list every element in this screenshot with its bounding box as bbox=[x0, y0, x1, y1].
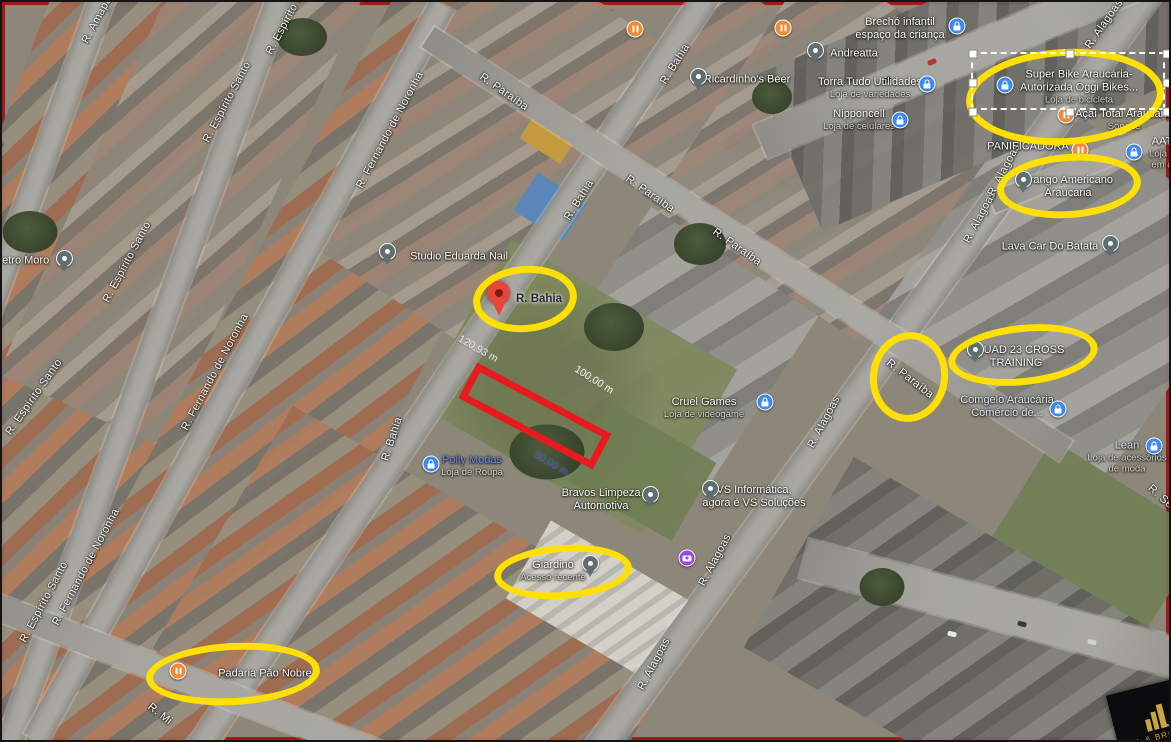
business-name: Studio Eduarda Nail bbox=[410, 251, 508, 264]
business-label[interactable]: Studio Eduarda Nail bbox=[410, 251, 508, 264]
business-name: Ricardinho's Beer bbox=[704, 74, 790, 87]
business-name: Petro Moro bbox=[0, 255, 49, 268]
business-category: em a bbox=[1149, 160, 1171, 171]
selection-handle[interactable] bbox=[969, 79, 978, 88]
business-label[interactable]: Comgelo AraucáriaComércio de... bbox=[960, 394, 1054, 420]
shop-lock-icon[interactable] bbox=[423, 456, 440, 473]
shop-lock-icon[interactable] bbox=[1050, 401, 1067, 418]
business-label[interactable]: Ricardinho's Beer bbox=[704, 74, 790, 87]
restaurant-icon[interactable] bbox=[627, 21, 644, 38]
business-name: Polly Modas bbox=[441, 454, 503, 467]
shop-lock-icon[interactable] bbox=[757, 394, 774, 411]
business-name: Comércio de... bbox=[960, 407, 1054, 420]
business-category: Loja de variedades bbox=[818, 89, 922, 100]
business-label[interactable]: Andreatta bbox=[830, 48, 878, 61]
shop-lock-icon[interactable] bbox=[919, 76, 936, 93]
place-pin-icon[interactable] bbox=[641, 486, 659, 510]
place-pin-icon[interactable] bbox=[55, 250, 73, 274]
selection-handle[interactable] bbox=[1163, 50, 1171, 59]
business-label[interactable]: Lava Car Do Batata bbox=[1002, 241, 1099, 254]
business-label[interactable]: Torra Tudo UtilidadesLoja de variedades bbox=[818, 76, 922, 100]
place-pin-icon[interactable] bbox=[1101, 235, 1119, 259]
business-label[interactable]: Brechó infantilespaço da criança bbox=[855, 16, 944, 42]
buildings-icon bbox=[1142, 701, 1171, 732]
selection-handle[interactable] bbox=[1163, 108, 1171, 117]
business-category: Loja de videogame bbox=[664, 409, 744, 420]
business-label[interactable]: Petro Moro bbox=[0, 255, 49, 268]
photo-sphere-icon[interactable] bbox=[679, 550, 696, 567]
business-name: Nipponcell bbox=[823, 108, 895, 121]
business-name: Torra Tudo Utilidades bbox=[818, 76, 922, 89]
business-name: Brechó infantil bbox=[855, 16, 944, 29]
business-name: Lava Car Do Batata bbox=[1002, 241, 1099, 254]
business-label[interactable]: Polly ModasLoja de Roupa bbox=[441, 454, 503, 478]
business-name: espaço da criança bbox=[855, 29, 944, 42]
place-pin-icon[interactable] bbox=[806, 42, 824, 66]
business-name: Automotiva bbox=[562, 500, 641, 513]
shop-lock-icon[interactable] bbox=[1126, 144, 1143, 161]
shop-lock-icon[interactable] bbox=[949, 18, 966, 35]
place-pin-icon[interactable] bbox=[378, 243, 396, 267]
business-category: Loja a bbox=[1149, 149, 1171, 160]
business-name: Cruel Games bbox=[664, 396, 744, 409]
tree bbox=[860, 568, 905, 606]
business-label[interactable]: Cruel GamesLoja de videogame bbox=[664, 396, 744, 420]
business-label[interactable]: AATLoja aem a bbox=[1149, 136, 1171, 171]
place-pin-icon[interactable] bbox=[701, 480, 719, 504]
satellite-map[interactable]: R. Bahia ML & BROKERS R. AmapáR. AmapáR.… bbox=[0, 0, 1171, 742]
business-category: Loja de Roupa bbox=[441, 467, 503, 478]
business-category: de moda bbox=[1087, 464, 1166, 475]
selection-box[interactable] bbox=[971, 52, 1165, 110]
restaurant-icon[interactable] bbox=[775, 20, 792, 37]
selection-handle[interactable] bbox=[1066, 108, 1075, 117]
tree bbox=[3, 211, 58, 253]
selection-handle[interactable] bbox=[1066, 50, 1075, 59]
place-pin-icon[interactable] bbox=[689, 68, 707, 92]
business-name: AAT bbox=[1149, 136, 1171, 149]
business-name: Comgelo Araucária bbox=[960, 394, 1054, 407]
shop-lock-icon[interactable] bbox=[892, 112, 909, 129]
business-name: Andreatta bbox=[830, 48, 878, 61]
business-name: Bravos Limpeza bbox=[562, 487, 641, 500]
business-label[interactable]: NipponcellLoja de celulares bbox=[823, 108, 895, 132]
shop-lock-icon[interactable] bbox=[1146, 438, 1163, 455]
tree bbox=[584, 303, 644, 351]
selection-handle[interactable] bbox=[1163, 79, 1171, 88]
selection-handle[interactable] bbox=[969, 108, 978, 117]
business-label[interactable]: Bravos LimpezaAutomotiva bbox=[562, 487, 641, 513]
selection-handle[interactable] bbox=[969, 50, 978, 59]
business-category: Loja de celulares bbox=[823, 121, 895, 132]
